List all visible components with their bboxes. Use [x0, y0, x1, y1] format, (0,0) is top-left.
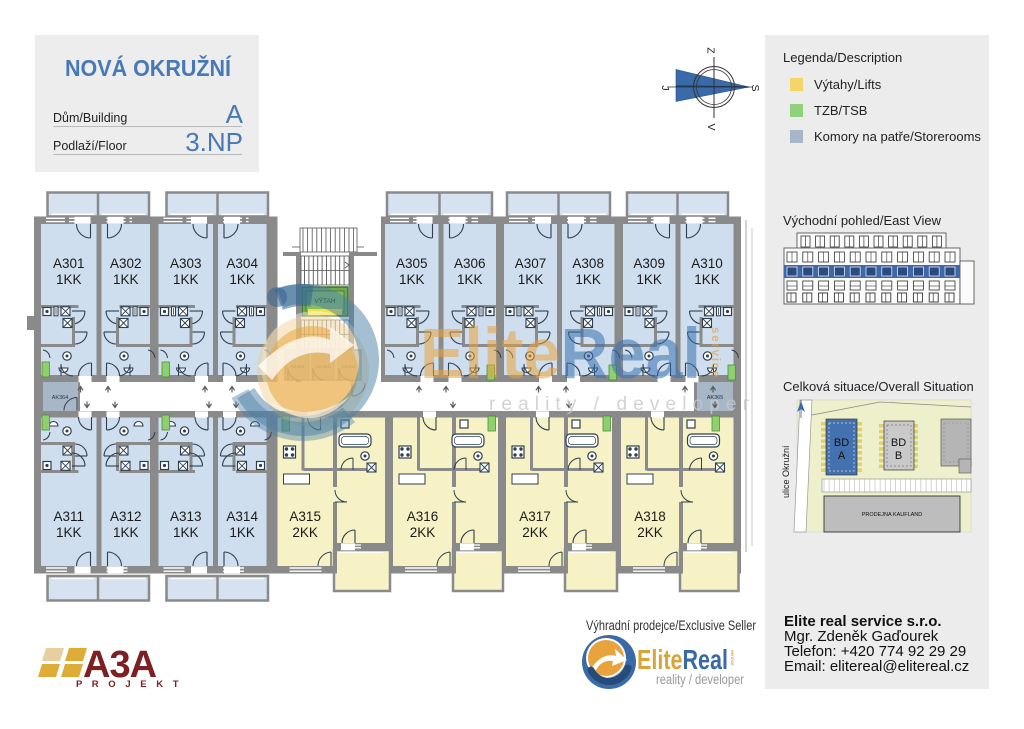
svg-text:1KK: 1KK [229, 272, 255, 287]
svg-text:A306: A306 [454, 256, 486, 271]
svg-text:V: V [705, 123, 717, 130]
svg-text:service: service [709, 327, 723, 379]
svg-text:2KK: 2KK [637, 525, 663, 540]
svg-text:1KK: 1KK [56, 272, 82, 287]
svg-text:Východní pohled/East View: Východní pohled/East View [783, 213, 942, 228]
svg-text:1KK: 1KK [636, 272, 662, 287]
svg-text:ulice Okružní: ulice Okružní [781, 445, 791, 498]
svg-text:A307: A307 [515, 256, 547, 271]
svg-text:A305: A305 [396, 256, 428, 271]
svg-text:1KK: 1KK [56, 525, 82, 540]
svg-text:2KK: 2KK [292, 525, 318, 540]
svg-text:A314: A314 [226, 509, 258, 524]
svg-text:S: S [749, 84, 761, 91]
svg-text:A315: A315 [289, 509, 321, 524]
svg-text:Legenda/Description: Legenda/Description [783, 50, 902, 65]
svg-text:Komory na patře/Storerooms: Komory na patře/Storerooms [814, 129, 981, 144]
svg-text:3.NP: 3.NP [185, 127, 243, 157]
svg-text:P R O J E K T: P R O J E K T [76, 679, 182, 690]
svg-text:A303: A303 [170, 256, 202, 271]
svg-text:B: B [895, 450, 902, 462]
svg-text:1KK: 1KK [399, 272, 425, 287]
svg-text:PRODEJNA KAUFLAND: PRODEJNA KAUFLAND [862, 512, 923, 518]
svg-text:A302: A302 [110, 256, 142, 271]
svg-text:1KK: 1KK [113, 525, 139, 540]
svg-text:2KK: 2KK [522, 525, 548, 540]
svg-text:2KK: 2KK [410, 525, 436, 540]
svg-text:A301: A301 [53, 256, 85, 271]
svg-text:A311: A311 [54, 509, 85, 524]
svg-text:Z: Z [705, 47, 717, 54]
svg-text:A: A [226, 99, 244, 129]
svg-text:Podlaží/Floor: Podlaží/Floor [53, 139, 127, 153]
svg-text:A304: A304 [226, 256, 258, 271]
svg-text:service: service [730, 650, 735, 666]
svg-text:1KK: 1KK [229, 525, 255, 540]
svg-text:Výhradní prodejce/Exclusive Se: Výhradní prodejce/Exclusive Seller [586, 618, 756, 633]
svg-text:Výtahy/Lifts: Výtahy/Lifts [814, 77, 882, 92]
svg-text:BD: BD [891, 437, 906, 449]
svg-text:A: A [838, 450, 846, 462]
svg-text:A317: A317 [519, 509, 551, 524]
svg-text:1KK: 1KK [694, 272, 720, 287]
svg-text:reality / developer: reality / developer [656, 671, 744, 687]
svg-text:1KK: 1KK [457, 272, 483, 287]
svg-text:Email: elitereal@elitereal.cz: Email: elitereal@elitereal.cz [784, 658, 969, 675]
svg-text:A312: A312 [110, 509, 142, 524]
svg-text:reality / developer: reality / developer [489, 394, 755, 415]
svg-text:1KK: 1KK [113, 272, 139, 287]
svg-text:Dům/Building: Dům/Building [53, 111, 127, 125]
svg-text:BD: BD [834, 437, 849, 449]
svg-text:1KK: 1KK [173, 525, 199, 540]
svg-text:J: J [659, 85, 671, 90]
svg-text:1KK: 1KK [575, 272, 601, 287]
svg-text:A313: A313 [170, 509, 202, 524]
svg-text:AK364: AK364 [52, 395, 69, 401]
svg-text:A310: A310 [691, 256, 723, 271]
svg-text:EliteReal: EliteReal [420, 315, 701, 394]
svg-text:TZB/TSB: TZB/TSB [814, 103, 867, 118]
svg-text:Celková situace/Overall Situat: Celková situace/Overall Situation [783, 379, 974, 394]
svg-text:A318: A318 [634, 509, 666, 524]
svg-text:1KK: 1KK [173, 272, 199, 287]
svg-text:1KK: 1KK [518, 272, 544, 287]
svg-text:NOVÁ OKRUŽNÍ: NOVÁ OKRUŽNÍ [65, 54, 232, 81]
svg-text:A316: A316 [407, 509, 439, 524]
svg-text:A308: A308 [572, 256, 604, 271]
svg-text:A309: A309 [633, 256, 665, 271]
